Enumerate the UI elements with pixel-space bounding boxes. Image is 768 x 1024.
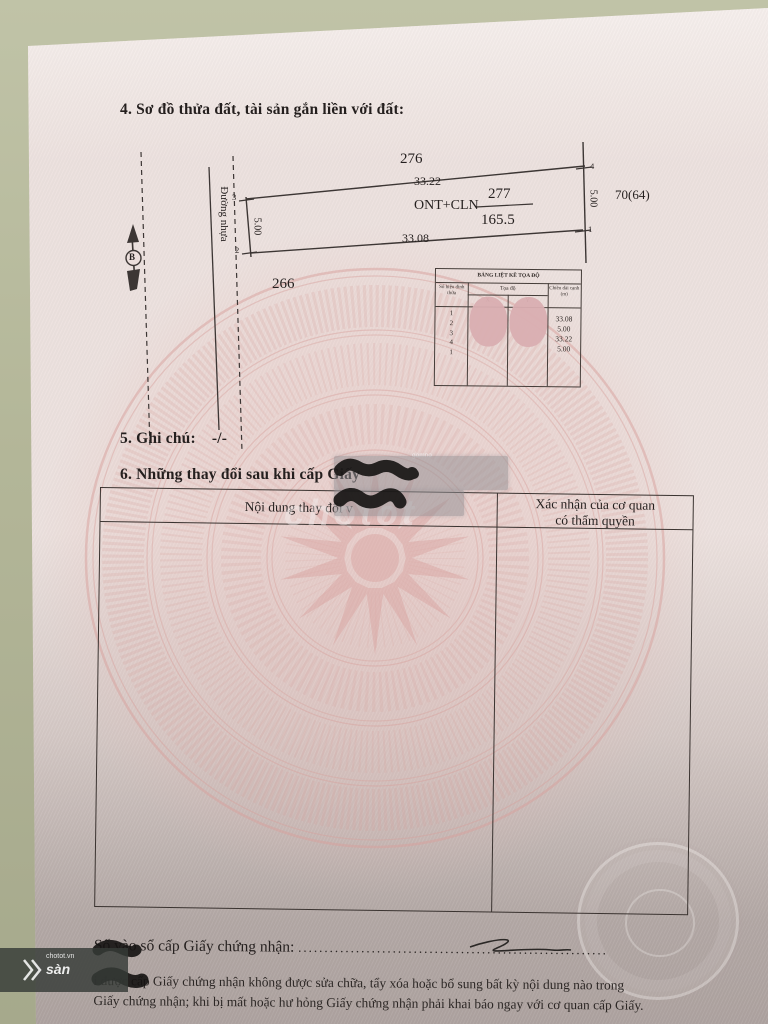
footer-block: Số vào sổ cấp Giấy chứng nhận: .........… bbox=[0, 0, 768, 1024]
chevron-icon bbox=[22, 958, 42, 982]
watermark-band-site: chotot.vn bbox=[46, 953, 74, 960]
photo-of-land-certificate: 4. Sơ đồ thửa đất, tài sản gắn liền với … bbox=[0, 0, 768, 1024]
watermark-band: chotot.vn sàn bbox=[0, 948, 128, 992]
watermark-band-text: sàn bbox=[46, 961, 70, 977]
usage-note-line2: Giấy chứng nhận; khi bị mất hoặc hư hỏng… bbox=[93, 991, 697, 1016]
serial-dotted-line: ........................................… bbox=[298, 940, 608, 958]
serial-number-line: Số vào sổ cấp Giấy chứng nhận: .........… bbox=[94, 937, 608, 959]
